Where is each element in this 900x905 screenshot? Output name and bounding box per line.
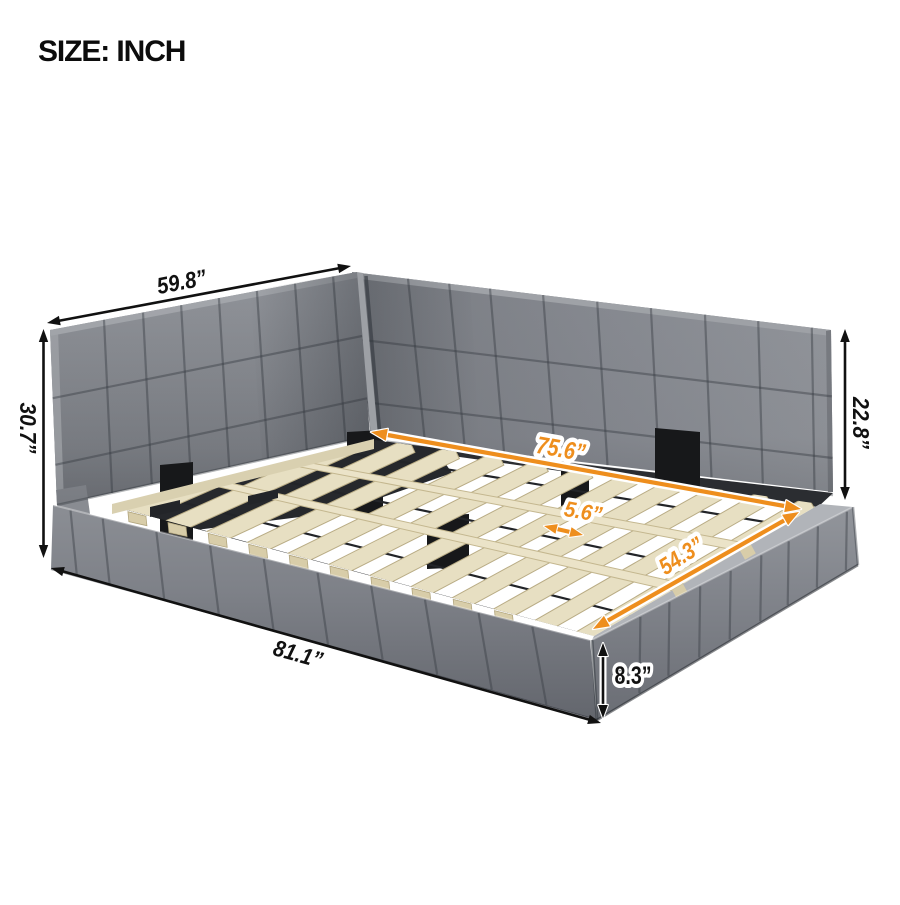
svg-text:22.8”: 22.8” bbox=[848, 396, 874, 449]
svg-text:8.3”: 8.3” bbox=[615, 662, 652, 690]
svg-text:SIZE: INCH: SIZE: INCH bbox=[38, 35, 185, 68]
svg-text:30.7”: 30.7” bbox=[15, 403, 41, 454]
